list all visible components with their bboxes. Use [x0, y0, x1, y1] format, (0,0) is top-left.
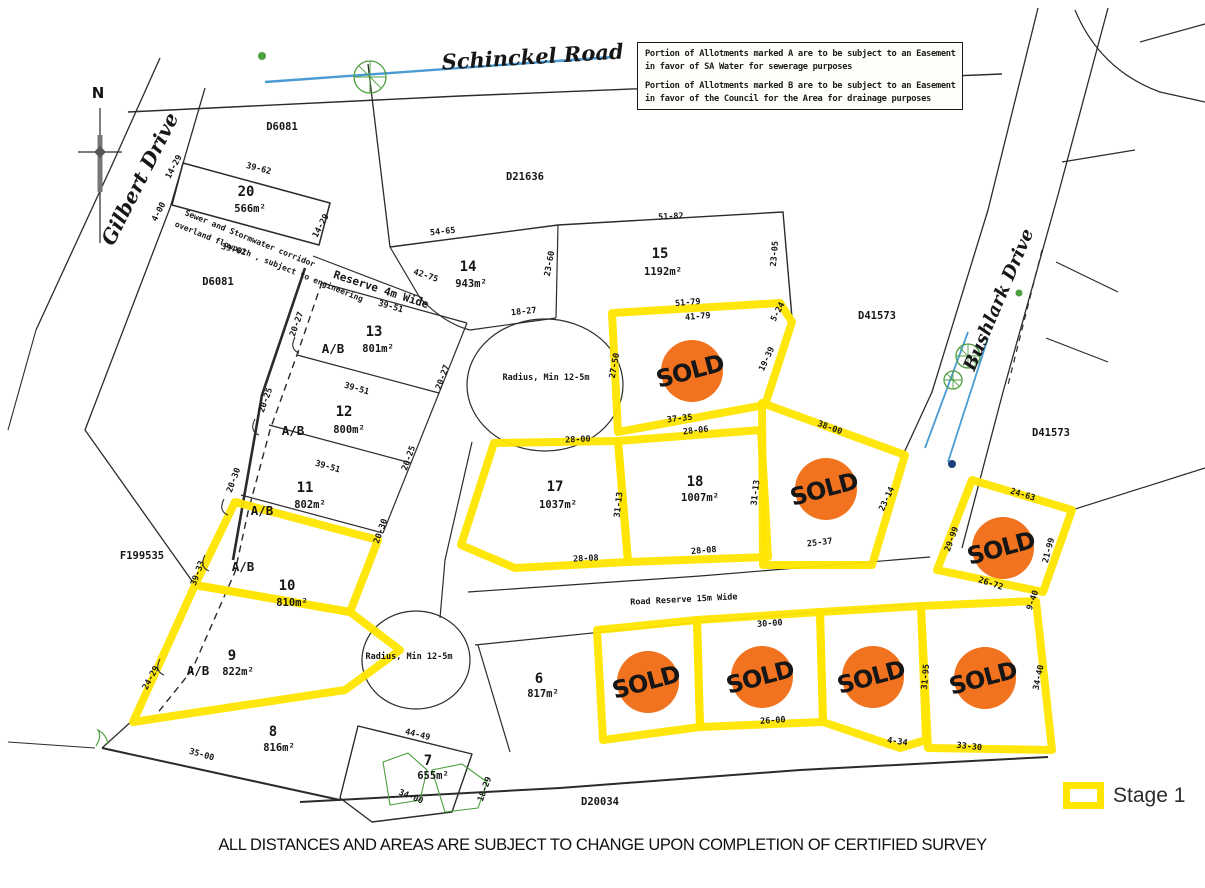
- stage1-lot-outline: [195, 502, 378, 612]
- dimension-label: 37-35: [666, 412, 693, 425]
- road-name: Bushlark Drive: [959, 226, 1038, 375]
- lot-number: 11: [297, 480, 314, 496]
- lot-number: 14: [460, 259, 477, 275]
- lot-area: 566m²: [234, 203, 266, 215]
- dimension-label: 18-29: [476, 776, 494, 803]
- dimension-label: 30-00: [757, 618, 783, 630]
- compass-north-label: N: [92, 84, 105, 102]
- dimension-label: 39-51: [314, 459, 341, 476]
- lot-number: 17: [547, 479, 564, 495]
- lot-area: 822m²: [222, 666, 254, 678]
- boundary-line: [1062, 150, 1135, 162]
- plan-reference: D21636: [506, 171, 544, 183]
- dimension-label: 28-00: [565, 434, 591, 445]
- dimension-label: 20-30: [225, 467, 243, 494]
- easement-ab-label: A/B: [232, 559, 255, 574]
- plan-reference: D20034: [581, 796, 619, 808]
- plan-reference: D6081: [266, 121, 298, 133]
- lot-number: 15: [652, 246, 669, 262]
- lot-area: 943m²: [455, 278, 487, 290]
- dimension-label: 23-05: [769, 241, 781, 267]
- plan-reference: D6081: [202, 276, 234, 288]
- dimension-label: 42-75: [412, 267, 439, 284]
- lot-number: 6: [535, 671, 543, 687]
- note-line: Portion of Allotments marked B are to be…: [645, 80, 956, 93]
- boundary-line: [1046, 338, 1108, 362]
- dimension-label: 29-99: [943, 526, 961, 553]
- boundary-line: [383, 323, 467, 533]
- dimension-label: 24-29: [141, 664, 162, 691]
- dimension-label: 20-30: [372, 518, 390, 545]
- road-name-dot: [1016, 290, 1023, 297]
- dimension-label: 38-00: [816, 419, 843, 437]
- annotation-label: Radius, Min 12-5m: [503, 372, 590, 383]
- dimension-label: 25-37: [806, 536, 833, 549]
- road-name: Schinckel Road: [441, 38, 625, 74]
- compass-diamond: [94, 146, 106, 158]
- disclaimer-caption: ALL DISTANCES AND AREAS ARE SUBJECT TO C…: [0, 836, 1205, 855]
- dimension-label: 39-62: [245, 161, 272, 177]
- dimension-label: 51-82: [658, 211, 684, 222]
- lot-number: 8: [269, 724, 277, 740]
- lot-number: 20: [238, 184, 255, 200]
- dimension-label: 23-60: [543, 250, 557, 277]
- boundary-line: [102, 720, 133, 748]
- stage1-legend: Stage 1: [1063, 782, 1185, 809]
- lot-area: 1192m²: [644, 266, 682, 278]
- subdivision-plan-page: SOLDSOLDSOLDSOLDSOLDSOLDSOLD14-2939-6214…: [0, 0, 1205, 888]
- boundary-line: [1140, 24, 1205, 42]
- dimension-label: 14-29: [311, 212, 332, 239]
- plan-reference: D41573: [1032, 427, 1070, 439]
- lot-area: 800m²: [333, 424, 365, 436]
- dimension-label: 41-79: [685, 311, 711, 323]
- subdivision-map-svg: SOLDSOLDSOLDSOLDSOLDSOLDSOLD14-2939-6214…: [0, 0, 1205, 888]
- dimension-label: 18-27: [511, 306, 537, 319]
- boundary-line: [8, 742, 95, 748]
- boundary-line: [1056, 262, 1118, 292]
- lot-area: 817m²: [527, 688, 559, 700]
- boundary-line: [962, 8, 1108, 548]
- lot-area: 1007m²: [681, 492, 719, 504]
- boundary-line: [102, 748, 340, 800]
- dimension-label: 31-95: [920, 664, 932, 690]
- shrub-dot: [258, 52, 266, 60]
- dimension-label: 20-27: [288, 311, 306, 338]
- easement-ab-label: A/B: [322, 341, 345, 356]
- stage1-lot-outline: [133, 585, 400, 722]
- lot-area: 1037m²: [539, 499, 577, 511]
- lot-number: 18: [687, 474, 704, 490]
- note-line: in favor of SA Water for sewerage purpos…: [645, 61, 956, 74]
- water-marker-dot: [948, 460, 956, 468]
- lot-area: 810m²: [276, 597, 308, 609]
- easement-ab-label: A/B: [282, 423, 305, 438]
- note-line: Portion of Allotments marked A are to be…: [645, 48, 956, 61]
- stage1-label: Stage 1: [1113, 784, 1185, 808]
- dimension-label: 26-00: [760, 715, 786, 727]
- easement-ab-label: A/B: [251, 503, 274, 518]
- lot-number: 10: [279, 578, 296, 594]
- lot-number: 7: [424, 753, 432, 769]
- lot-area: 802m²: [294, 499, 326, 511]
- lot-area: 801m²: [362, 343, 394, 355]
- stage1-swatch: [1063, 782, 1104, 809]
- boundary-line: [368, 64, 390, 247]
- annotation-label: Road Reserve 15m Wide: [630, 591, 738, 608]
- dimension-label: 39-51: [343, 381, 370, 398]
- dimension-label: 20-27: [434, 364, 452, 391]
- note-line: in favor of the Council for the Area for…: [645, 93, 956, 106]
- dimension-label: 34-00: [397, 788, 424, 807]
- boundary-line: [340, 726, 472, 822]
- boundary-line: [478, 645, 510, 752]
- plan-reference: D41573: [858, 310, 896, 322]
- dimension-label: 54-65: [430, 226, 456, 239]
- plan-reference: F199535: [120, 550, 164, 562]
- dimension-label: 27-50: [608, 352, 622, 379]
- lot-area: 655m²: [417, 770, 449, 782]
- easement-note-box: Portion of Allotments marked A are to be…: [637, 42, 963, 110]
- annotation-label: Radius, Min 12-5m: [366, 651, 453, 662]
- dimension-label: 28-08: [573, 553, 599, 564]
- boundary-line: [556, 225, 558, 318]
- lot-number: 9: [228, 648, 236, 664]
- dimension-label: 35-00: [188, 747, 215, 764]
- cul-de-sac-top: [467, 319, 623, 451]
- dimension-label: 24-63: [1009, 487, 1036, 504]
- dimension-label: 20-25: [257, 387, 275, 414]
- dimension-label: 20-25: [400, 445, 418, 472]
- easement-ab-label: A/B: [187, 663, 210, 678]
- lot-number: 13: [366, 324, 383, 340]
- boundary-line: [1072, 468, 1205, 510]
- lot-area: 816m²: [263, 742, 295, 754]
- lot-number: 12: [336, 404, 353, 420]
- boundary-line: [8, 330, 36, 430]
